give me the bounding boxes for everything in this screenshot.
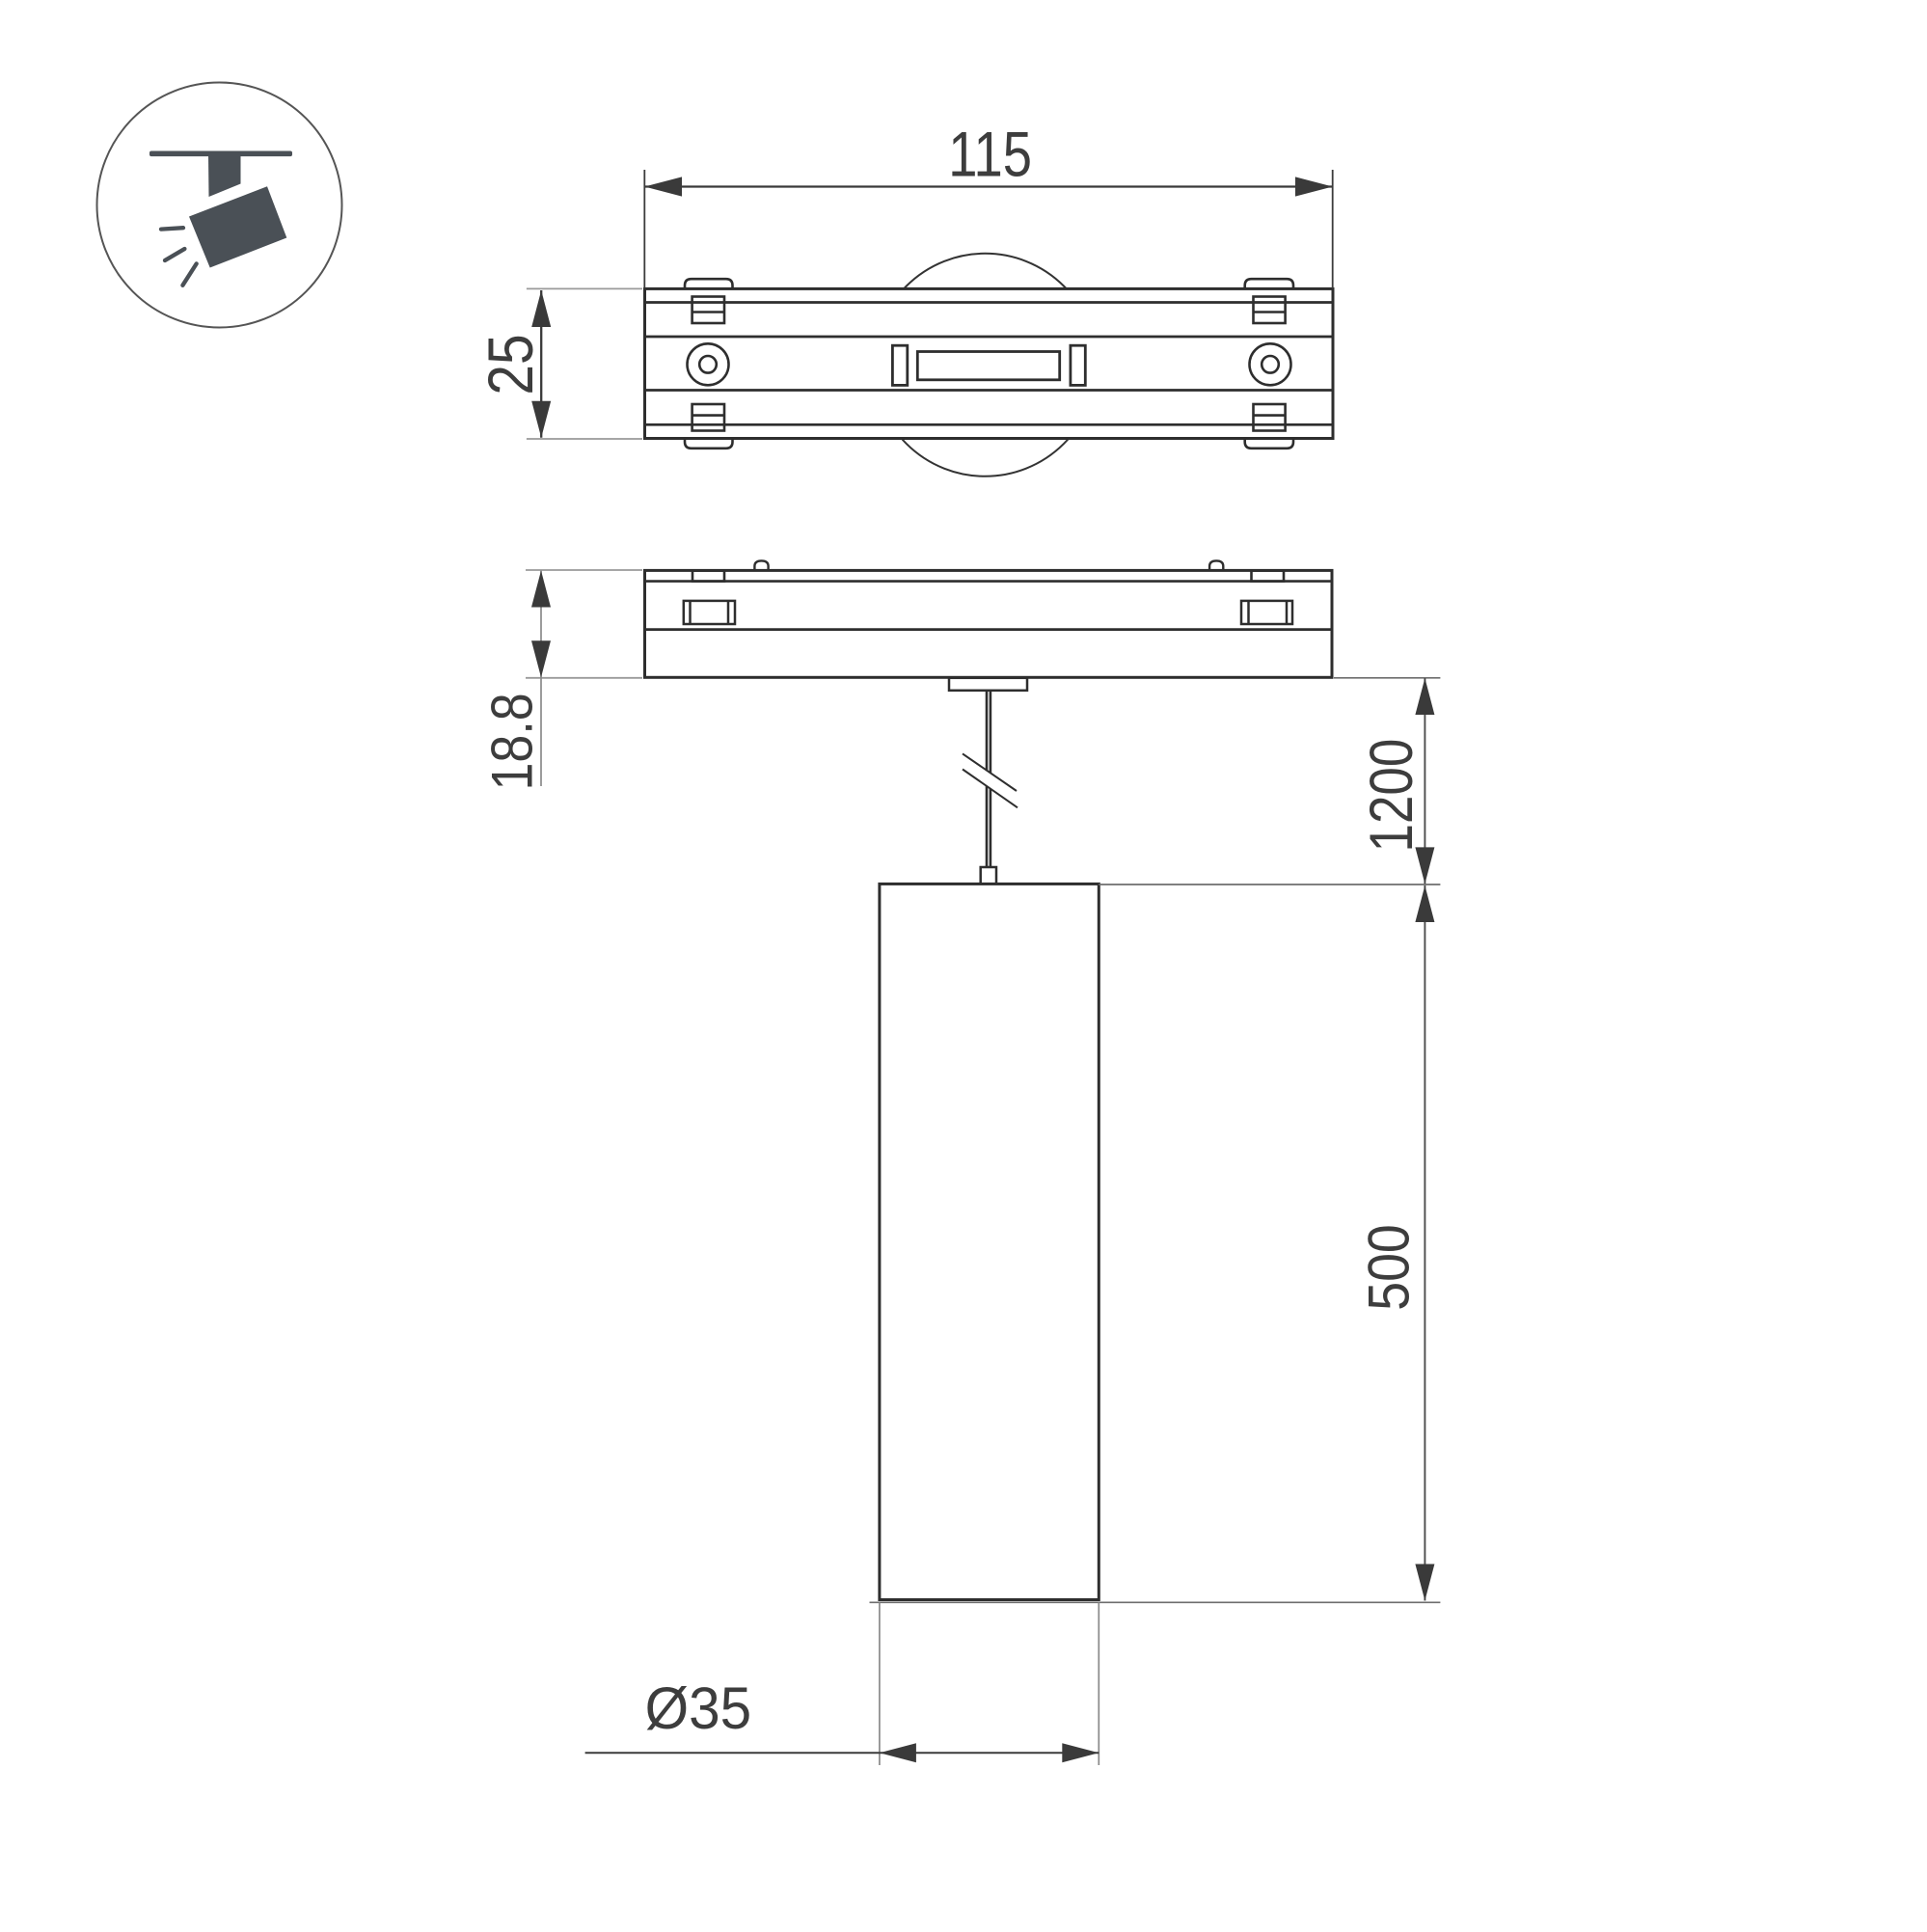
svg-text:115: 115 — [948, 118, 1032, 189]
svg-text:Ø35: Ø35 — [645, 1675, 752, 1741]
svg-text:500: 500 — [1356, 1224, 1422, 1310]
svg-text:1200: 1200 — [1358, 739, 1425, 853]
svg-text:25: 25 — [475, 334, 547, 395]
svg-text:18.8: 18.8 — [479, 693, 544, 790]
